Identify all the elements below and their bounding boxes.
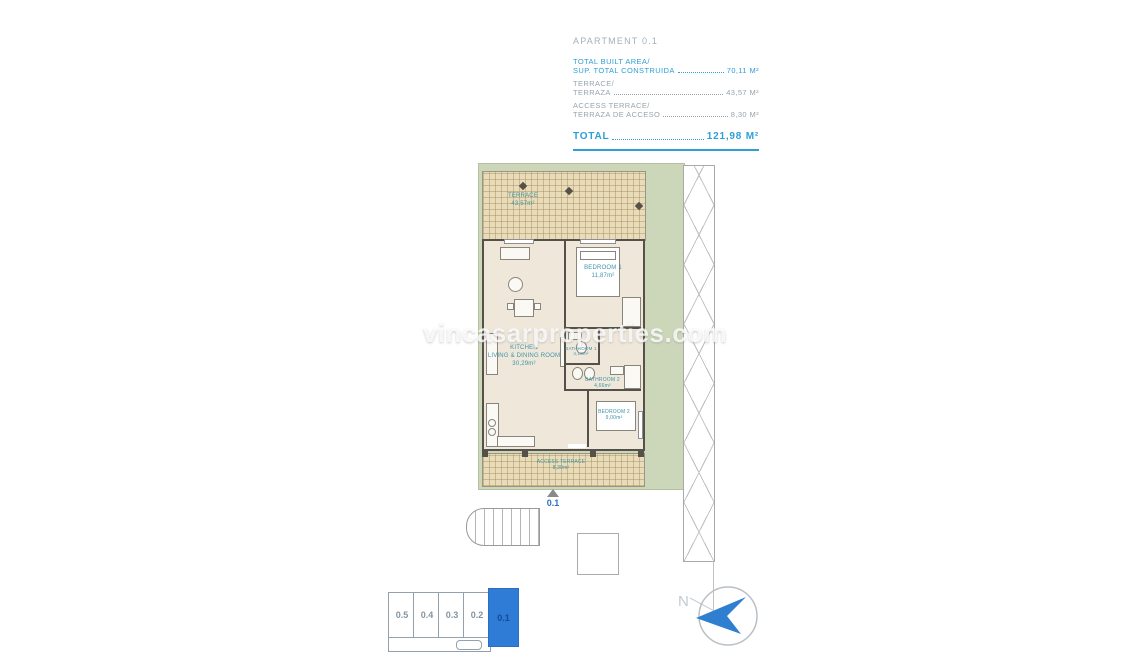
bathroom2-label: BATHROOM 2 4,66m² [564,377,641,389]
terrace-label: TERRACE 43,57m² [498,193,548,209]
dotted-leader [614,94,723,95]
row-value: 70,11 M² [727,66,759,75]
dining-table-icon [514,299,534,317]
planter-outline [577,533,619,575]
chair-icon [534,303,541,310]
summary-row-built-area: TOTAL BUILT AREA/ SUP. TOTAL CONSTRUIDA … [573,57,759,75]
area-summary: APARTMENT 0.1 TOTAL BUILT AREA/ SUP. TOT… [573,36,759,151]
row-label-es: SUP. TOTAL CONSTRUIDA [573,66,675,75]
keyplan: 0.5 0.4 0.3 0.2 0.1 [388,586,528,656]
unit-cell-0-4[interactable]: 0.4 [413,592,441,638]
row-value: 8,30 M² [731,110,759,119]
row-label-es: TERRAZA [573,88,611,97]
entrance-marker: 0.1 [540,489,566,508]
unit-cell-0-1-selected[interactable]: 0.1 [488,588,519,647]
window-icon [504,239,534,244]
row-label-en: TOTAL BUILT AREA/ [573,57,759,66]
pillar-icon [638,451,644,457]
entrance-unit-number: 0.1 [540,498,566,508]
sideboard-icon [500,247,530,260]
north-arrow-icon [696,597,746,634]
keyplan-footprint-tab [456,640,482,650]
wall [564,389,641,391]
apartment-title: APARTMENT 0.1 [573,36,759,46]
pillar-icon [590,451,596,457]
stairs-icon [466,508,540,546]
total-label: TOTAL [573,131,609,142]
header-underline [573,149,759,151]
access-terrace-label: ACCESS TERRACE 8,30m² [528,459,594,471]
north-compass: N [670,576,785,658]
dotted-leader [663,116,728,117]
floorplan-page: APARTMENT 0.1 TOTAL BUILT AREA/ SUP. TOT… [0,0,1130,665]
bedroom1-label: BEDROOM 1 11,87m² [566,265,640,281]
sink-icon [610,366,624,375]
row-label-es: TERRAZA DE ACCESO [573,110,660,119]
row-label-en: ACCESS TERRACE/ [573,101,759,110]
total-value: 121,98 M² [707,131,759,142]
unit-cell-0-3[interactable]: 0.3 [438,592,466,638]
sink-icon [488,428,496,436]
unit-cell-0-5[interactable]: 0.5 [388,592,416,638]
dotted-leader [612,139,703,140]
wall [564,363,600,365]
kitchen-counter-icon [497,436,535,447]
summary-row-terrace: TERRACE/ TERRAZA 43,57 M² [573,79,759,97]
pillar-icon [482,451,488,457]
round-table-icon [508,277,523,292]
pillow-icon [580,251,616,260]
window-icon [580,239,616,244]
row-value: 43,57 M² [726,88,759,97]
north-letter: N [678,593,689,610]
summary-row-access-terrace: ACCESS TERRACE/ TERRAZA DE ACCESO 8,30 M… [573,101,759,119]
row-label-en: TERRACE/ [573,79,759,88]
floor-plan: TERRACE 43,57m² [470,155,725,640]
dotted-leader [678,72,724,73]
pillar-icon [522,451,528,457]
sink-icon [488,419,496,427]
entrance-arrow-icon [547,489,559,497]
bedroom2-label: BEDROOM 2 9,00m² [587,409,641,421]
wall [564,241,566,391]
watermark: vincasarproperties.com [410,318,740,349]
summary-total-row: TOTAL 121,98 M² [573,131,759,142]
side-walkway [683,165,715,562]
chair-icon [507,303,514,310]
door-opening [568,444,586,448]
unit-cell-0-2[interactable]: 0.2 [463,592,491,638]
